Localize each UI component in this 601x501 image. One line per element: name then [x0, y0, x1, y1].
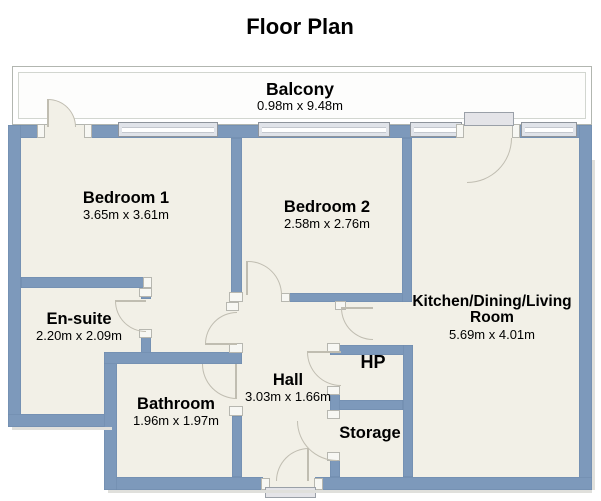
- door-leaf: [341, 307, 373, 309]
- room-name: Bathroom: [133, 396, 219, 413]
- door-leaf: [307, 448, 309, 481]
- floor-plan: Floor Plan: [0, 0, 601, 501]
- room-dims: 3.03m x 1.66m: [245, 390, 331, 405]
- wall-bottom: [104, 477, 592, 490]
- room-label-storage: Storage: [339, 425, 400, 442]
- window-bedroom2: [258, 122, 390, 137]
- window-kitchen-b: [521, 122, 577, 137]
- door-leaf: [235, 364, 237, 399]
- door-jamb: [281, 293, 290, 302]
- outside-notch: [21, 427, 104, 477]
- room-name: Storage: [339, 425, 400, 442]
- room-dims: 1.96m x 1.97m: [133, 414, 219, 429]
- room-dims: 2.20m x 2.09m: [36, 329, 122, 344]
- balcony-door2-slab: [464, 112, 514, 126]
- wall-left: [8, 125, 21, 427]
- wall-kitchen-left: [402, 138, 412, 302]
- room-name: HP: [360, 353, 385, 372]
- door-jamb: [143, 277, 152, 288]
- shadow-step: [12, 427, 112, 430]
- door-jamb: [226, 302, 239, 311]
- room-label-kitchen-dining-living: Kitchen/Dining/Living Room 5.69m x 4.01m: [405, 294, 580, 342]
- wall-hp-storage-divider: [332, 400, 403, 410]
- page-title: Floor Plan: [246, 14, 354, 40]
- door-jamb: [229, 406, 243, 416]
- balcony-door2-opening: [464, 125, 512, 138]
- room-label-hall: Hall 3.03m x 1.66m: [245, 372, 331, 405]
- door-leaf: [307, 351, 341, 353]
- wall-bathroom-top: [104, 352, 242, 364]
- door-jamb: [37, 124, 45, 138]
- room-label-ensuite: En-suite 2.20m x 2.09m: [36, 311, 122, 344]
- room-name: Bedroom 1: [83, 190, 169, 207]
- door-jamb: [512, 124, 520, 138]
- room-name: En-suite: [36, 311, 122, 328]
- door-leaf: [205, 343, 237, 345]
- door-leaf: [246, 261, 248, 295]
- wall-bedroom2-bottom: [283, 293, 412, 302]
- shadow-bottom: [108, 490, 592, 493]
- room-label-bathroom: Bathroom 1.96m x 1.97m: [133, 396, 219, 429]
- wall-hp-right: [403, 345, 413, 477]
- door-jamb: [456, 124, 464, 138]
- room-name: Balcony: [257, 80, 343, 98]
- wall-bathroom-left: [104, 352, 117, 490]
- room-dims: 5.69m x 4.01m: [405, 328, 580, 343]
- room-label-bedroom-1: Bedroom 1 3.65m x 3.61m: [83, 190, 169, 223]
- shadow-right: [592, 160, 595, 490]
- balcony-label: Balcony 0.98m x 9.48m: [257, 80, 343, 114]
- wall-ensuite-bottom: [8, 414, 117, 427]
- window-kitchen-a: [410, 122, 462, 137]
- room-name: Bedroom 2: [284, 199, 370, 216]
- window-bedroom1: [118, 122, 218, 137]
- room-label-hp: HP: [360, 353, 385, 372]
- room-name: Hall: [245, 372, 331, 389]
- wall-bedroom-divider: [231, 138, 242, 293]
- room-label-bedroom-2: Bedroom 2 2.58m x 2.76m: [284, 199, 370, 232]
- wall-hall-left: [232, 416, 242, 477]
- wall-bedroom1-bottom: [21, 277, 147, 288]
- room-dims: 3.65m x 3.61m: [83, 208, 169, 223]
- door-jamb: [229, 292, 243, 302]
- door-leaf: [115, 300, 146, 302]
- wall-right: [579, 125, 592, 490]
- room-dims: 0.98m x 9.48m: [257, 99, 343, 114]
- door-jamb: [84, 124, 92, 138]
- door-jamb: [139, 288, 152, 297]
- door-jamb: [327, 410, 340, 419]
- door-leaf: [47, 99, 49, 127]
- room-name: Kitchen/Dining/Living Room: [405, 294, 580, 327]
- room-dims: 2.58m x 2.76m: [284, 217, 370, 232]
